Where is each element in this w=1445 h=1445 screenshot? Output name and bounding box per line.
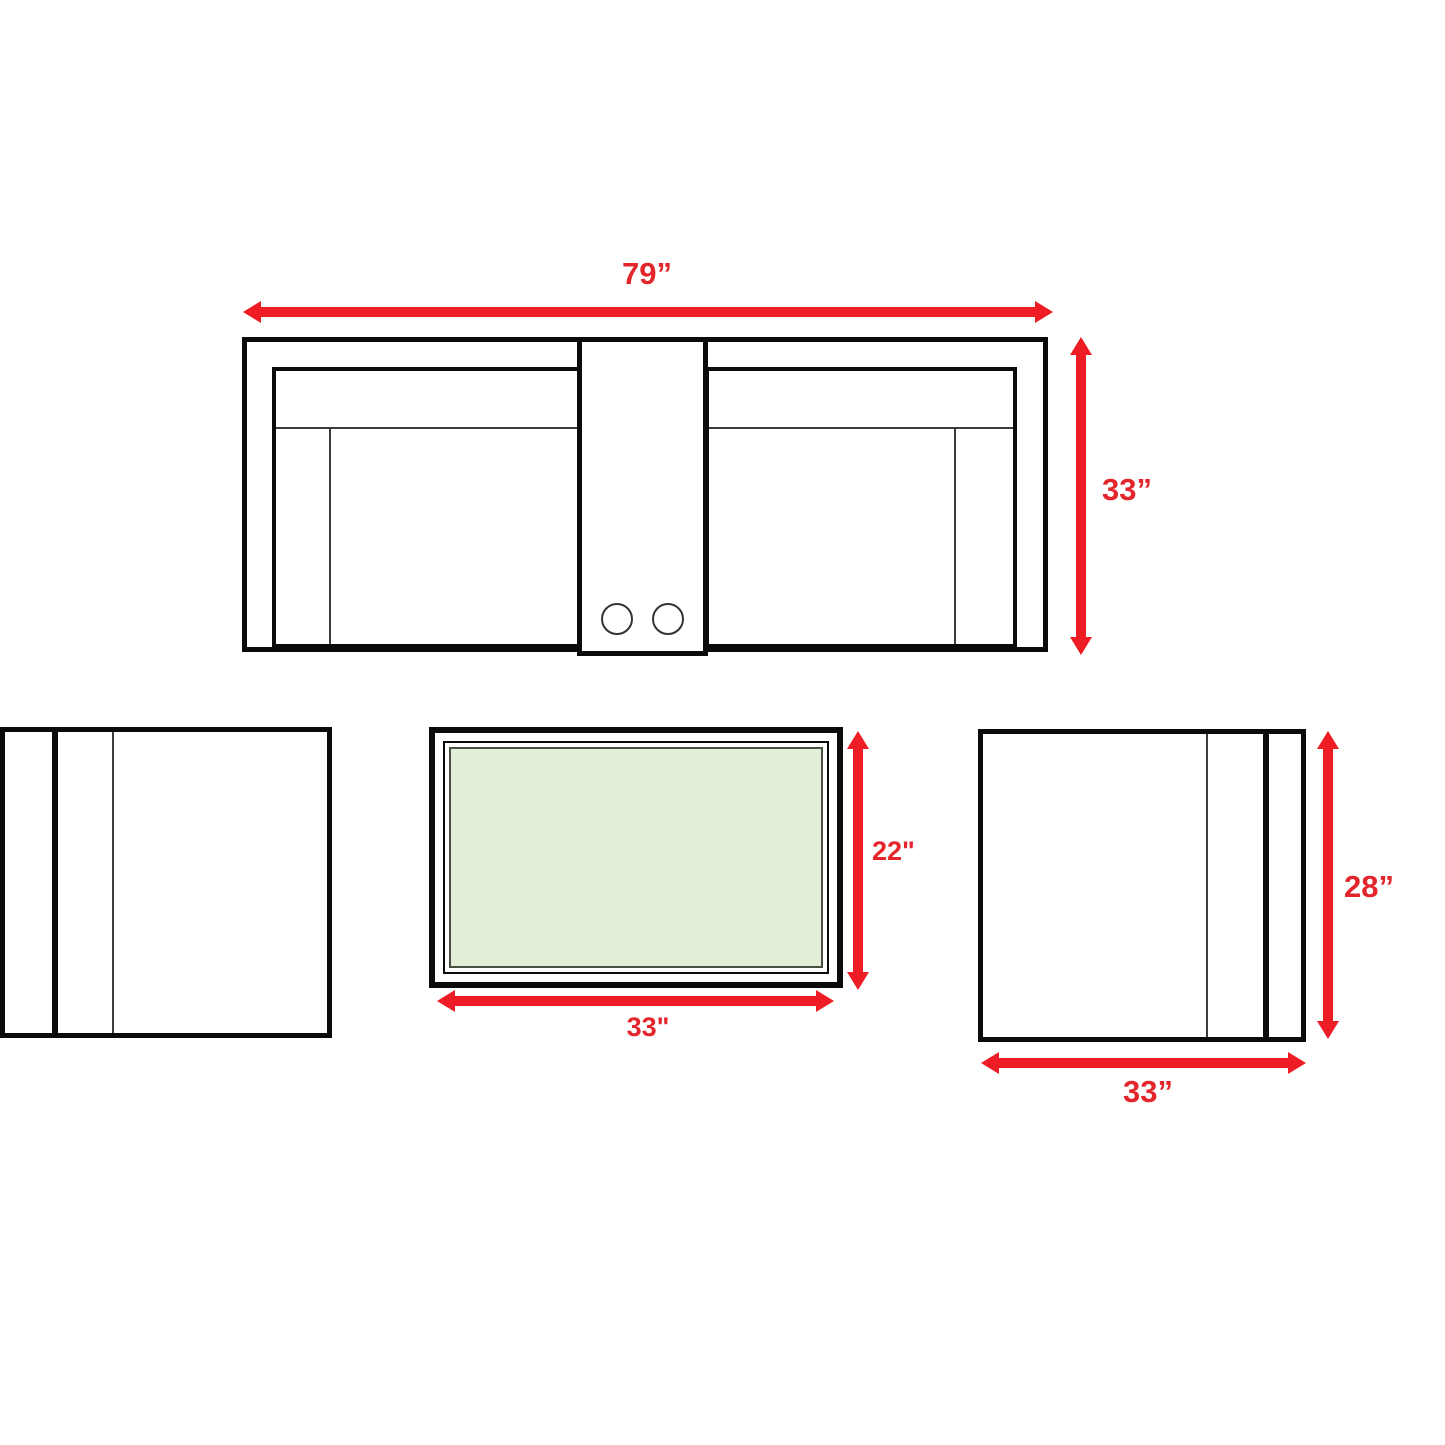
left-armchair-armrest-thick-line (52, 732, 58, 1033)
arrow-bar (1076, 353, 1086, 639)
furniture-dimensions-diagram: 79” 33” (0, 0, 1445, 1445)
cupholder-left-icon (601, 603, 633, 635)
sofa-width-arrow (243, 301, 1053, 323)
sofa-depth-arrow (1070, 337, 1092, 655)
sofa-right-armrest-line (954, 427, 956, 644)
arrow-head-right-icon (816, 990, 834, 1012)
arrow-head-down-icon (847, 972, 869, 990)
coffee-table-depth-arrow (847, 731, 869, 990)
sofa-depth-label: 33” (1102, 472, 1152, 508)
sofa-center-console (577, 337, 708, 656)
arrow-head-right-icon (1288, 1052, 1306, 1074)
arrow-bar (1323, 747, 1333, 1023)
coffee-table-glass-top (449, 747, 823, 968)
right-armchair-depth-arrow (1317, 731, 1339, 1039)
right-armchair-armrest-thick-line (1263, 734, 1269, 1037)
sofa-right-backrest-line (709, 427, 1013, 429)
sofa-left-seat (272, 367, 582, 648)
coffee-table-depth-label: 22" (872, 834, 915, 868)
left-armchair-outline (0, 727, 332, 1038)
sofa-left-backrest-line (276, 427, 578, 429)
right-armchair-width-label: 33” (1088, 1074, 1208, 1110)
sofa-width-label: 79” (572, 256, 722, 292)
sofa-right-seat (705, 367, 1017, 648)
cupholder-right-icon (652, 603, 684, 635)
right-armchair-armrest-thin-line (1206, 734, 1208, 1037)
coffee-table-width-arrow (437, 990, 834, 1012)
right-armchair-depth-label: 28” (1344, 869, 1394, 905)
arrow-bar (853, 747, 863, 974)
arrow-bar (259, 307, 1037, 317)
arrow-bar (997, 1058, 1290, 1068)
left-armchair-armrest-thin-line (112, 732, 114, 1033)
arrow-head-down-icon (1070, 637, 1092, 655)
coffee-table-width-label: 33" (588, 1010, 708, 1044)
arrow-head-down-icon (1317, 1021, 1339, 1039)
sofa-left-armrest-line (329, 427, 331, 644)
arrow-bar (453, 996, 818, 1006)
right-armchair-width-arrow (981, 1052, 1306, 1074)
arrow-head-right-icon (1035, 301, 1053, 323)
right-armchair-outline (978, 729, 1306, 1042)
